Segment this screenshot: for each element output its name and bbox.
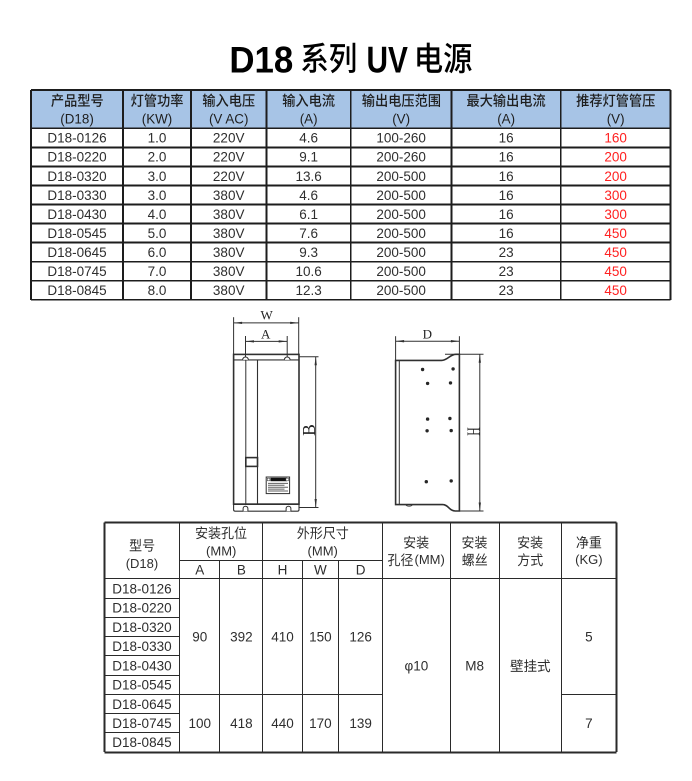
svg-text:(MM): (MM): [206, 544, 236, 559]
svg-text:D18-0430: D18-0430: [112, 658, 171, 673]
svg-text:D18-0845: D18-0845: [47, 283, 106, 298]
svg-text:220V: 220V: [213, 169, 245, 184]
svg-text:M8: M8: [465, 658, 484, 673]
svg-text:(A): (A): [497, 112, 515, 127]
svg-text:16: 16: [499, 188, 514, 203]
svg-text:450: 450: [604, 226, 627, 241]
svg-text:(KG): (KG): [575, 552, 602, 567]
svg-text:200-500: 200-500: [376, 283, 426, 298]
svg-text:410: 410: [271, 630, 294, 645]
svg-text:200-500: 200-500: [376, 169, 426, 184]
svg-text:W: W: [314, 563, 327, 578]
svg-text:D18-0645: D18-0645: [47, 245, 106, 260]
svg-text:7.6: 7.6: [299, 226, 318, 241]
svg-text:D18-0845: D18-0845: [112, 735, 171, 750]
svg-text:380V: 380V: [213, 283, 245, 298]
svg-text:D18-0430: D18-0430: [47, 207, 106, 222]
svg-text:4.6: 4.6: [299, 188, 318, 203]
svg-text:418: 418: [230, 716, 253, 731]
svg-text:A: A: [195, 563, 204, 578]
svg-text:B: B: [299, 424, 319, 436]
svg-text:160: 160: [604, 131, 627, 146]
svg-text:5.0: 5.0: [148, 226, 167, 241]
svg-text:9.3: 9.3: [299, 245, 318, 260]
svg-text:23: 23: [499, 264, 514, 279]
svg-text:380V: 380V: [213, 245, 245, 260]
svg-text:D18-0330: D18-0330: [47, 188, 106, 203]
svg-text:139: 139: [349, 716, 372, 731]
svg-text:4.0: 4.0: [148, 207, 167, 222]
svg-text:A: A: [261, 327, 271, 342]
svg-text:16: 16: [499, 150, 514, 165]
svg-text:450: 450: [604, 264, 627, 279]
svg-text:10.6: 10.6: [296, 264, 322, 279]
svg-text:H: H: [463, 427, 483, 436]
svg-text:D: D: [423, 326, 432, 341]
svg-text:450: 450: [604, 283, 627, 298]
svg-text:3.0: 3.0: [148, 169, 167, 184]
svg-text:B: B: [237, 563, 246, 578]
svg-text:380V: 380V: [213, 207, 245, 222]
svg-text:D18-0220: D18-0220: [112, 601, 171, 616]
svg-text:16: 16: [499, 131, 514, 146]
svg-text:D: D: [356, 563, 366, 578]
svg-text:200-500: 200-500: [376, 264, 426, 279]
svg-text:(KW): (KW): [142, 112, 173, 127]
svg-text:D18-0745: D18-0745: [47, 264, 106, 279]
svg-text:D18-0220: D18-0220: [47, 150, 106, 165]
svg-text:φ10: φ10: [404, 658, 428, 673]
svg-text:300: 300: [604, 188, 627, 203]
svg-text:200-500: 200-500: [376, 207, 426, 222]
svg-text:(MM): (MM): [308, 544, 338, 559]
svg-text:(A): (A): [300, 112, 318, 127]
svg-text:(V): (V): [607, 112, 625, 127]
svg-text:7: 7: [585, 716, 593, 731]
svg-text:23: 23: [499, 283, 514, 298]
svg-text:3.0: 3.0: [148, 188, 167, 203]
svg-text:220V: 220V: [213, 131, 245, 146]
svg-text:7.0: 7.0: [148, 264, 167, 279]
svg-text:200-500: 200-500: [376, 226, 426, 241]
svg-text:D18-0645: D18-0645: [112, 697, 171, 712]
svg-text:D18-0545: D18-0545: [112, 678, 171, 693]
svg-text:(D18): (D18): [126, 556, 159, 571]
svg-text:126: 126: [349, 630, 372, 645]
svg-text:1.0: 1.0: [148, 131, 167, 146]
svg-text:16: 16: [499, 226, 514, 241]
svg-text:D18-0126: D18-0126: [47, 131, 106, 146]
svg-text:D18: D18: [229, 39, 293, 81]
svg-text:(V): (V): [392, 112, 410, 127]
svg-text:D18-0320: D18-0320: [112, 620, 171, 635]
svg-text:6.1: 6.1: [299, 207, 318, 222]
svg-text:9.1: 9.1: [299, 150, 318, 165]
svg-text:8.0: 8.0: [148, 283, 167, 298]
svg-text:200: 200: [604, 169, 627, 184]
svg-text:380V: 380V: [213, 226, 245, 241]
svg-text:UV: UV: [367, 39, 408, 81]
svg-text:200-260: 200-260: [376, 150, 426, 165]
svg-text:392: 392: [230, 630, 253, 645]
svg-text:D18-0545: D18-0545: [47, 226, 106, 241]
svg-text:D18-0330: D18-0330: [112, 639, 171, 654]
svg-text:12.3: 12.3: [296, 283, 322, 298]
svg-text:6.0: 6.0: [148, 245, 167, 260]
svg-text:200-500: 200-500: [376, 245, 426, 260]
svg-text:13.6: 13.6: [296, 169, 322, 184]
svg-text:D18-0126: D18-0126: [112, 581, 171, 596]
svg-text:90: 90: [192, 630, 207, 645]
svg-text:100: 100: [188, 716, 211, 731]
svg-text:440: 440: [271, 716, 294, 731]
svg-text:5: 5: [585, 630, 593, 645]
svg-text:W: W: [260, 307, 273, 322]
svg-text:16: 16: [499, 169, 514, 184]
svg-text:(V AC): (V AC): [209, 112, 248, 127]
svg-text:23: 23: [499, 245, 514, 260]
svg-text:2.0: 2.0: [148, 150, 167, 165]
svg-text:380V: 380V: [213, 264, 245, 279]
svg-text:100-260: 100-260: [376, 131, 426, 146]
svg-text:150: 150: [309, 630, 332, 645]
svg-text:380V: 380V: [213, 188, 245, 203]
svg-text:H: H: [278, 563, 288, 578]
svg-text:D18-0320: D18-0320: [47, 169, 106, 184]
svg-text:200-500: 200-500: [376, 188, 426, 203]
svg-text:16: 16: [499, 207, 514, 222]
svg-text:4.6: 4.6: [299, 131, 318, 146]
svg-text:170: 170: [309, 716, 332, 731]
svg-text:D18-0745: D18-0745: [112, 716, 171, 731]
svg-text:(MM): (MM): [414, 552, 444, 567]
svg-text:220V: 220V: [213, 150, 245, 165]
svg-text:(D18): (D18): [60, 112, 93, 127]
svg-text:200: 200: [604, 150, 627, 165]
svg-text:300: 300: [604, 207, 627, 222]
svg-text:450: 450: [604, 245, 627, 260]
